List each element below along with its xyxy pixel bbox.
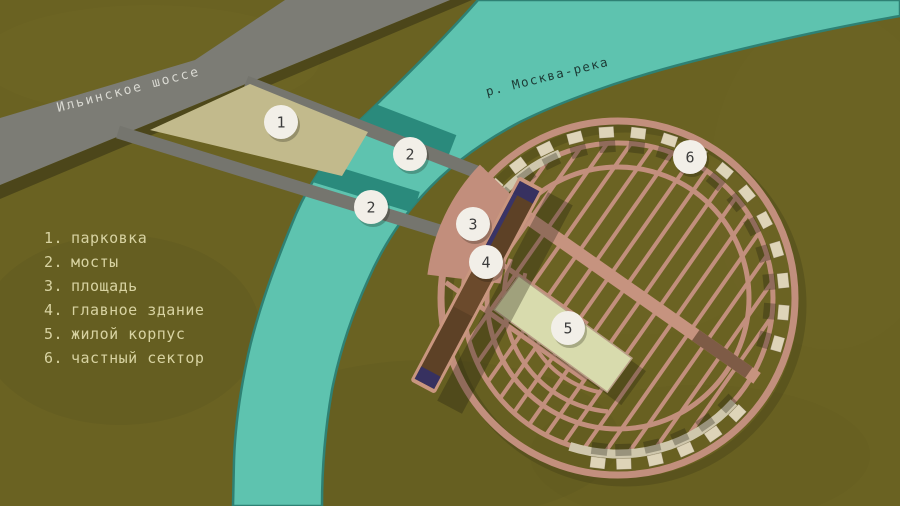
house xyxy=(630,127,646,140)
legend-number: 5. xyxy=(44,322,71,346)
legend-number: 1. xyxy=(44,226,71,250)
map-marker-label: 3 xyxy=(468,216,477,234)
legend-item: 1.парковка xyxy=(44,226,204,250)
legend-item: 4.главное здание xyxy=(44,298,204,322)
map-marker-label: 2 xyxy=(405,146,414,164)
legend-label: главное здание xyxy=(71,301,204,319)
legend-number: 3. xyxy=(44,274,71,298)
legend-number: 2. xyxy=(44,250,71,274)
house-shadow xyxy=(763,303,776,320)
house xyxy=(590,456,606,469)
legend-label: площадь xyxy=(71,277,138,295)
legend-item: 2.мосты xyxy=(44,250,204,274)
map-marker-label: 1 xyxy=(276,114,285,132)
house-shadow xyxy=(599,140,616,153)
house xyxy=(616,458,631,470)
house xyxy=(777,305,789,321)
house xyxy=(599,126,615,138)
house xyxy=(777,273,790,289)
map-marker-label: 5 xyxy=(563,320,572,338)
legend: 1.парковка2.мосты3.площадь4.главное здан… xyxy=(44,226,204,370)
legend-number: 4. xyxy=(44,298,71,322)
house-shadow xyxy=(628,140,645,154)
house-shadow xyxy=(762,274,776,291)
legend-label: жилой корпус xyxy=(71,325,185,343)
legend-item: 5.жилой корпус xyxy=(44,322,204,346)
house-shadow xyxy=(591,442,608,456)
legend-label: парковка xyxy=(71,229,147,247)
map-marker-label: 2 xyxy=(366,199,375,217)
house-shadow xyxy=(615,444,631,457)
masterplan-screenshot: Ильинское шоссе р. Москва-река xyxy=(0,0,900,506)
legend-item: 3.площадь xyxy=(44,274,204,298)
legend-item: 6.частный сектор xyxy=(44,346,204,370)
legend-label: мосты xyxy=(71,253,119,271)
legend-label: частный сектор xyxy=(71,349,204,367)
map-marker-label: 6 xyxy=(685,149,694,167)
map-marker-label: 4 xyxy=(481,254,490,272)
legend-number: 6. xyxy=(44,346,71,370)
